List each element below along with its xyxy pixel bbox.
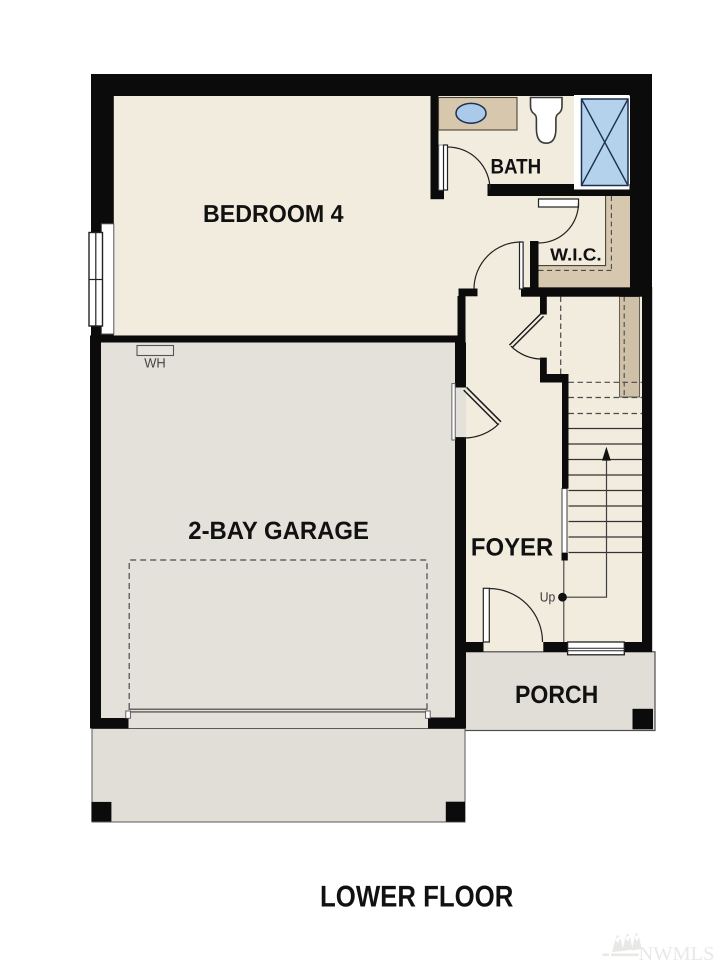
svg-text:2-BAY GARAGE: 2-BAY GARAGE	[188, 517, 369, 545]
svg-text:Up: Up	[540, 590, 556, 605]
svg-text:NWMLS: NWMLS	[639, 944, 715, 965]
svg-text:FOYER: FOYER	[471, 533, 553, 561]
svg-text:LOWER FLOOR: LOWER FLOOR	[320, 881, 514, 914]
svg-text:W.I.C.: W.I.C.	[550, 245, 602, 265]
svg-text:BEDROOM 4: BEDROOM 4	[203, 201, 344, 228]
svg-text:PORCH: PORCH	[515, 681, 598, 709]
svg-text:WH: WH	[144, 356, 166, 371]
svg-text:BATH: BATH	[490, 155, 541, 178]
